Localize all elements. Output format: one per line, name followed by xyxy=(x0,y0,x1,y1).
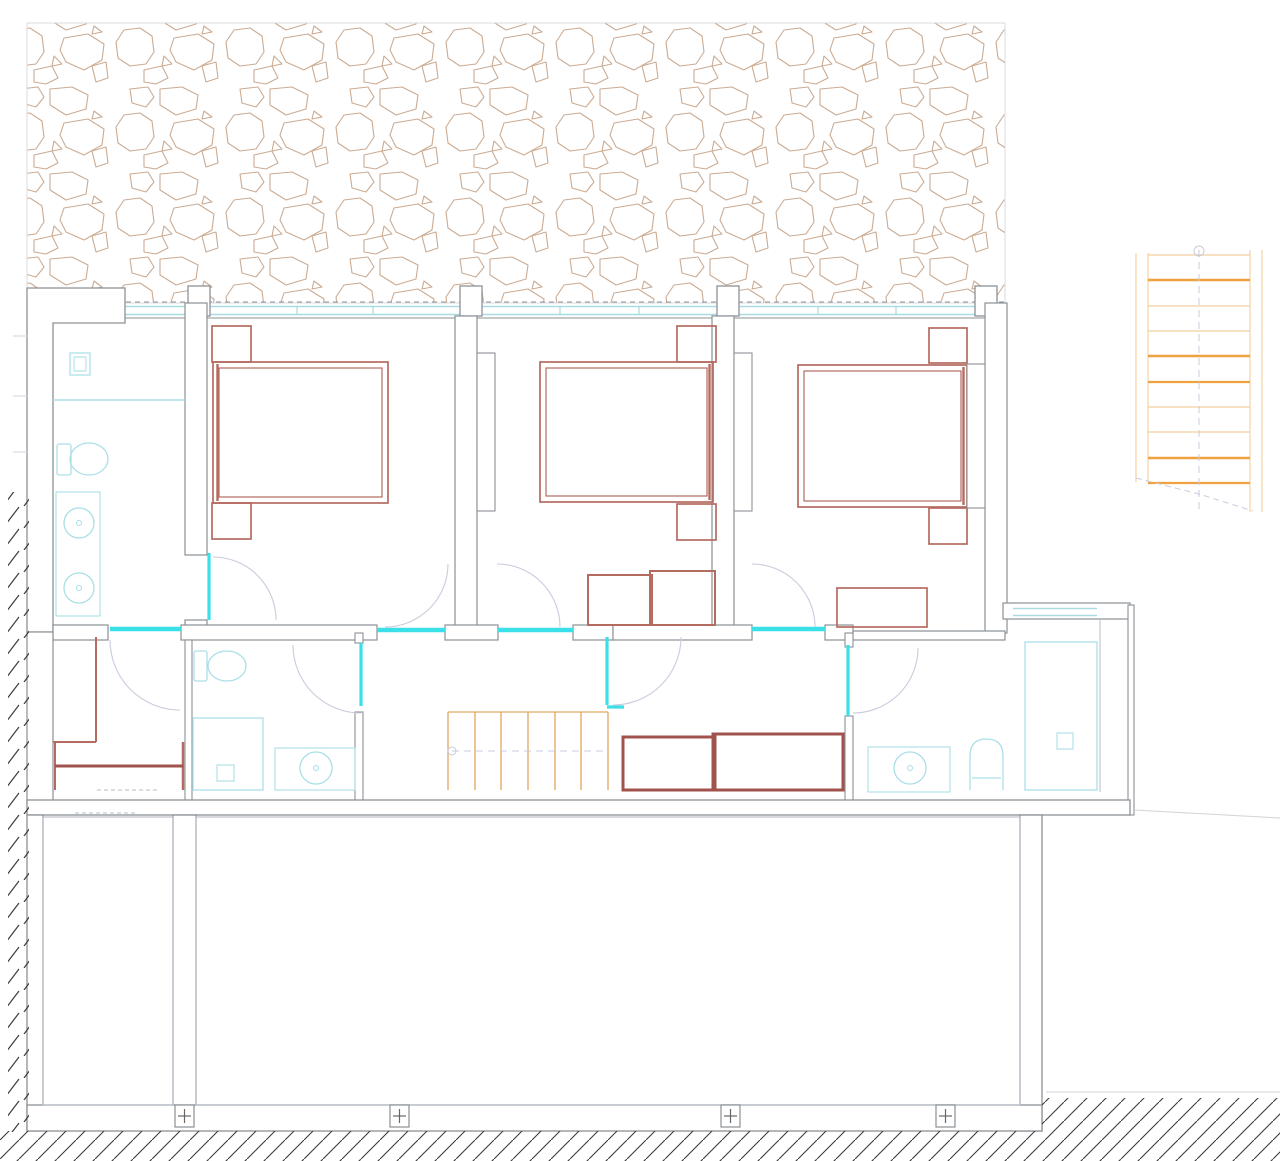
wall-south-band xyxy=(27,800,1130,815)
room-outline-main xyxy=(196,817,1020,1105)
door-swing-arc xyxy=(853,648,918,713)
sink-counter xyxy=(868,747,950,792)
wall-bottom-left xyxy=(27,815,43,1131)
wall-bath2-east-stub xyxy=(355,633,363,643)
wall-bath3-east xyxy=(1128,605,1134,815)
shower-drain xyxy=(217,765,234,781)
wall-bottom-right xyxy=(1020,815,1042,1131)
shower-head-box-inner xyxy=(74,357,86,371)
nightstand xyxy=(929,508,967,544)
wall-mid-band xyxy=(53,625,108,640)
sink-drain xyxy=(908,766,913,771)
door-swing-arc xyxy=(293,645,361,713)
bed-mattress xyxy=(219,368,382,497)
wall-bed1-bed2 xyxy=(455,316,477,638)
wall-cabinet xyxy=(734,353,752,511)
wall-bath3-top xyxy=(1003,603,1130,619)
door-swing-arc xyxy=(385,564,448,627)
floor-plan-svg xyxy=(0,0,1280,1161)
bed-outline xyxy=(540,362,713,502)
wall-bath2-east xyxy=(355,712,363,802)
sink-basin xyxy=(64,508,94,538)
wall-column xyxy=(717,286,739,316)
shower-head-box xyxy=(70,353,90,375)
floor-plan xyxy=(0,0,1280,1161)
sink-drain xyxy=(77,586,82,591)
door-swing-arc xyxy=(613,637,681,705)
sink-basin xyxy=(64,573,94,603)
toilet-tank xyxy=(57,444,71,475)
wall-cabinet xyxy=(967,364,985,508)
door-swing-arc xyxy=(497,564,560,627)
toilet-bowl xyxy=(70,443,108,475)
stone-fill-area xyxy=(27,23,1005,303)
toilet-bowl xyxy=(970,739,1003,790)
wall-mid-band xyxy=(181,625,377,640)
sink-counter xyxy=(56,492,100,616)
nightstand xyxy=(212,326,251,362)
sink-drain xyxy=(314,766,319,771)
shower-tray xyxy=(193,718,263,790)
room-outline-left xyxy=(43,817,173,1105)
wall-bath3-west-stub xyxy=(845,633,853,647)
toilet-tank xyxy=(194,651,207,681)
bed-outline xyxy=(798,365,967,507)
sink-drain xyxy=(77,521,82,526)
terrain-line xyxy=(1134,810,1280,818)
dresser xyxy=(837,588,927,627)
hall-wardrobe xyxy=(713,734,843,790)
sink-basin xyxy=(300,752,332,784)
wall-bath2-west xyxy=(185,640,192,802)
hall-wardrobe xyxy=(623,737,715,790)
sink-basin xyxy=(894,752,926,784)
wall-left-block xyxy=(27,288,125,632)
door-swing-arc xyxy=(752,564,815,627)
dresser xyxy=(650,571,715,625)
bed-outline xyxy=(213,362,388,503)
wall-mid-band xyxy=(445,625,498,640)
wall-bath3-west xyxy=(845,716,853,802)
wall-cabinet xyxy=(477,353,495,511)
shower-tray xyxy=(1025,642,1097,790)
toilet-bowl xyxy=(208,651,246,681)
wall-left-lower xyxy=(27,632,53,802)
nightstand xyxy=(212,503,251,539)
wall-bath1-bed1 xyxy=(185,303,207,555)
wall-mid-band xyxy=(613,625,752,640)
wall-column xyxy=(460,286,482,316)
wall-bath3-north xyxy=(853,631,1005,640)
bed-mattress xyxy=(804,371,961,501)
wall-bed3-east xyxy=(985,303,1007,633)
ground-hatch-left xyxy=(8,492,29,1132)
nightstand xyxy=(929,328,967,363)
dresser xyxy=(588,575,652,625)
nightstand xyxy=(677,504,716,540)
wall-bottom-divider xyxy=(173,815,196,1110)
bed-mattress xyxy=(546,368,707,496)
door-swing-arc xyxy=(110,640,180,710)
nightstand xyxy=(677,326,716,362)
door-swing-arc xyxy=(213,557,276,620)
shower-drain xyxy=(1057,733,1073,749)
